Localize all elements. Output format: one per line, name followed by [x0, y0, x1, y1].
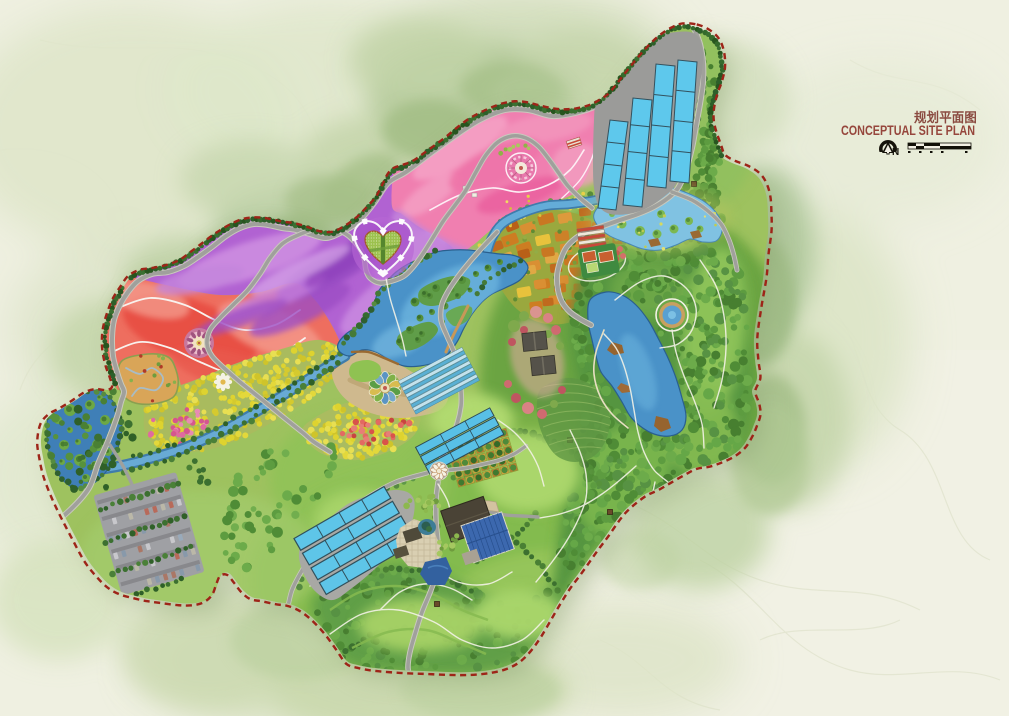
svg-text:CONCEPTUAL SITE PLAN: CONCEPTUAL SITE PLAN — [841, 123, 975, 138]
svg-text:N: N — [892, 147, 899, 158]
